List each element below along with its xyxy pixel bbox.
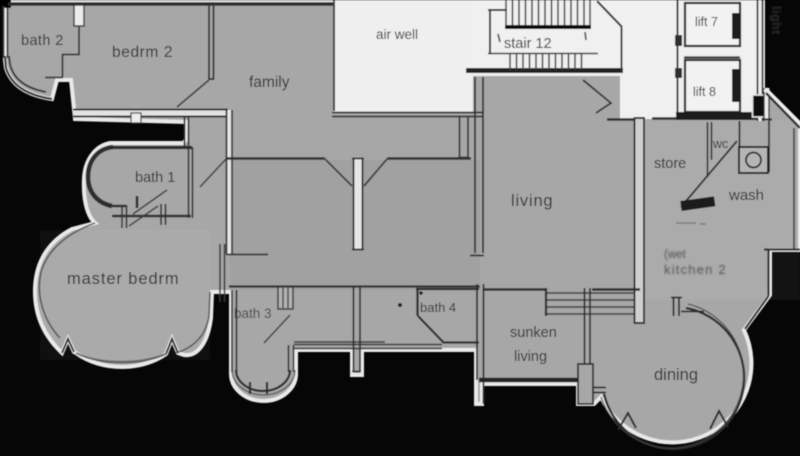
- svg-text:light: light: [769, 6, 783, 35]
- svg-text:dining: dining: [654, 366, 698, 384]
- svg-text:bath 4: bath 4: [420, 300, 456, 315]
- svg-text:store: store: [654, 156, 686, 172]
- svg-text:bath 1: bath 1: [135, 170, 175, 186]
- svg-text:air well: air well: [376, 27, 418, 42]
- svg-text:family: family: [249, 74, 290, 91]
- svg-text:kitchen 2: kitchen 2: [664, 262, 727, 277]
- svg-text:(wet: (wet: [664, 249, 687, 261]
- svg-text:bath 2: bath 2: [21, 33, 64, 49]
- svg-text:master bedrm: master bedrm: [67, 270, 180, 288]
- svg-text:living: living: [514, 349, 547, 365]
- svg-text:wc: wc: [712, 137, 728, 151]
- svg-text:stair 12: stair 12: [504, 36, 552, 52]
- svg-text:lift 8: lift 8: [693, 85, 716, 99]
- svg-text:bath 3: bath 3: [234, 306, 272, 321]
- svg-text:lift 7: lift 7: [695, 15, 718, 29]
- svg-text:sunken: sunken: [510, 325, 557, 341]
- svg-text:bedrm 2: bedrm 2: [112, 44, 173, 61]
- svg-text:wash: wash: [728, 187, 764, 204]
- svg-text:living: living: [511, 192, 553, 210]
